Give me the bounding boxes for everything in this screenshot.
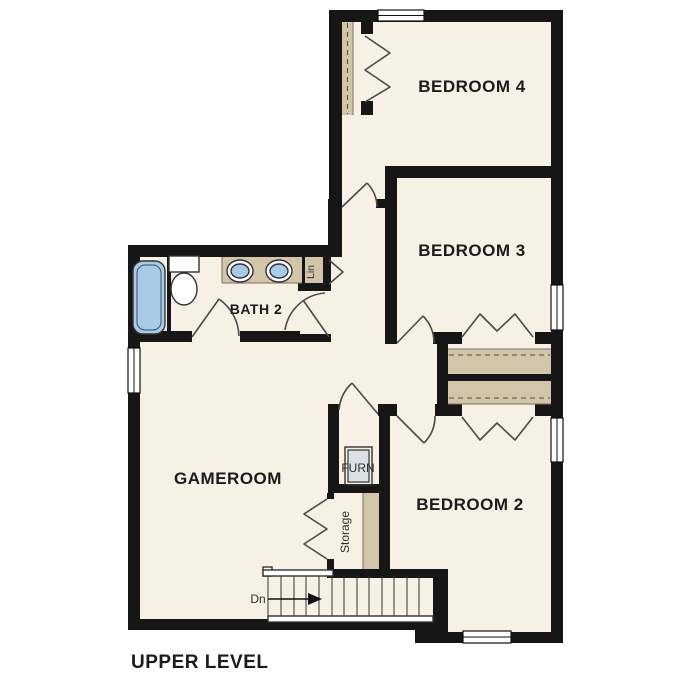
gameroom-label: GAMEROOM bbox=[174, 469, 282, 488]
sink-right-basin bbox=[270, 264, 288, 278]
storage-label: Storage bbox=[338, 511, 352, 553]
sink-left-basin bbox=[231, 264, 249, 278]
stairs-down-label: Dn bbox=[250, 592, 265, 606]
plan-title: UPPER LEVEL bbox=[131, 652, 268, 673]
bath2-label: BATH 2 bbox=[230, 301, 283, 317]
toilet-bowl bbox=[171, 273, 197, 305]
bedroom3-label: BEDROOM 3 bbox=[418, 241, 525, 260]
linen-label: Lin bbox=[305, 265, 317, 279]
stair-rail bbox=[263, 570, 333, 576]
stair-stringer bbox=[268, 616, 433, 622]
bedroom2-label: BEDROOM 2 bbox=[416, 495, 523, 514]
bedroom4-label: BEDROOM 4 bbox=[418, 77, 526, 96]
floor-plan-canvas: BEDROOM 4 BEDROOM 3 BEDROOM 2 GAMEROOM B… bbox=[0, 0, 687, 687]
toilet-tank bbox=[169, 256, 199, 272]
furnace-label: FURN bbox=[341, 461, 374, 475]
bathtub bbox=[133, 261, 165, 334]
floor-plan-page: BEDROOM 4 BEDROOM 3 BEDROOM 2 GAMEROOM B… bbox=[0, 0, 687, 687]
